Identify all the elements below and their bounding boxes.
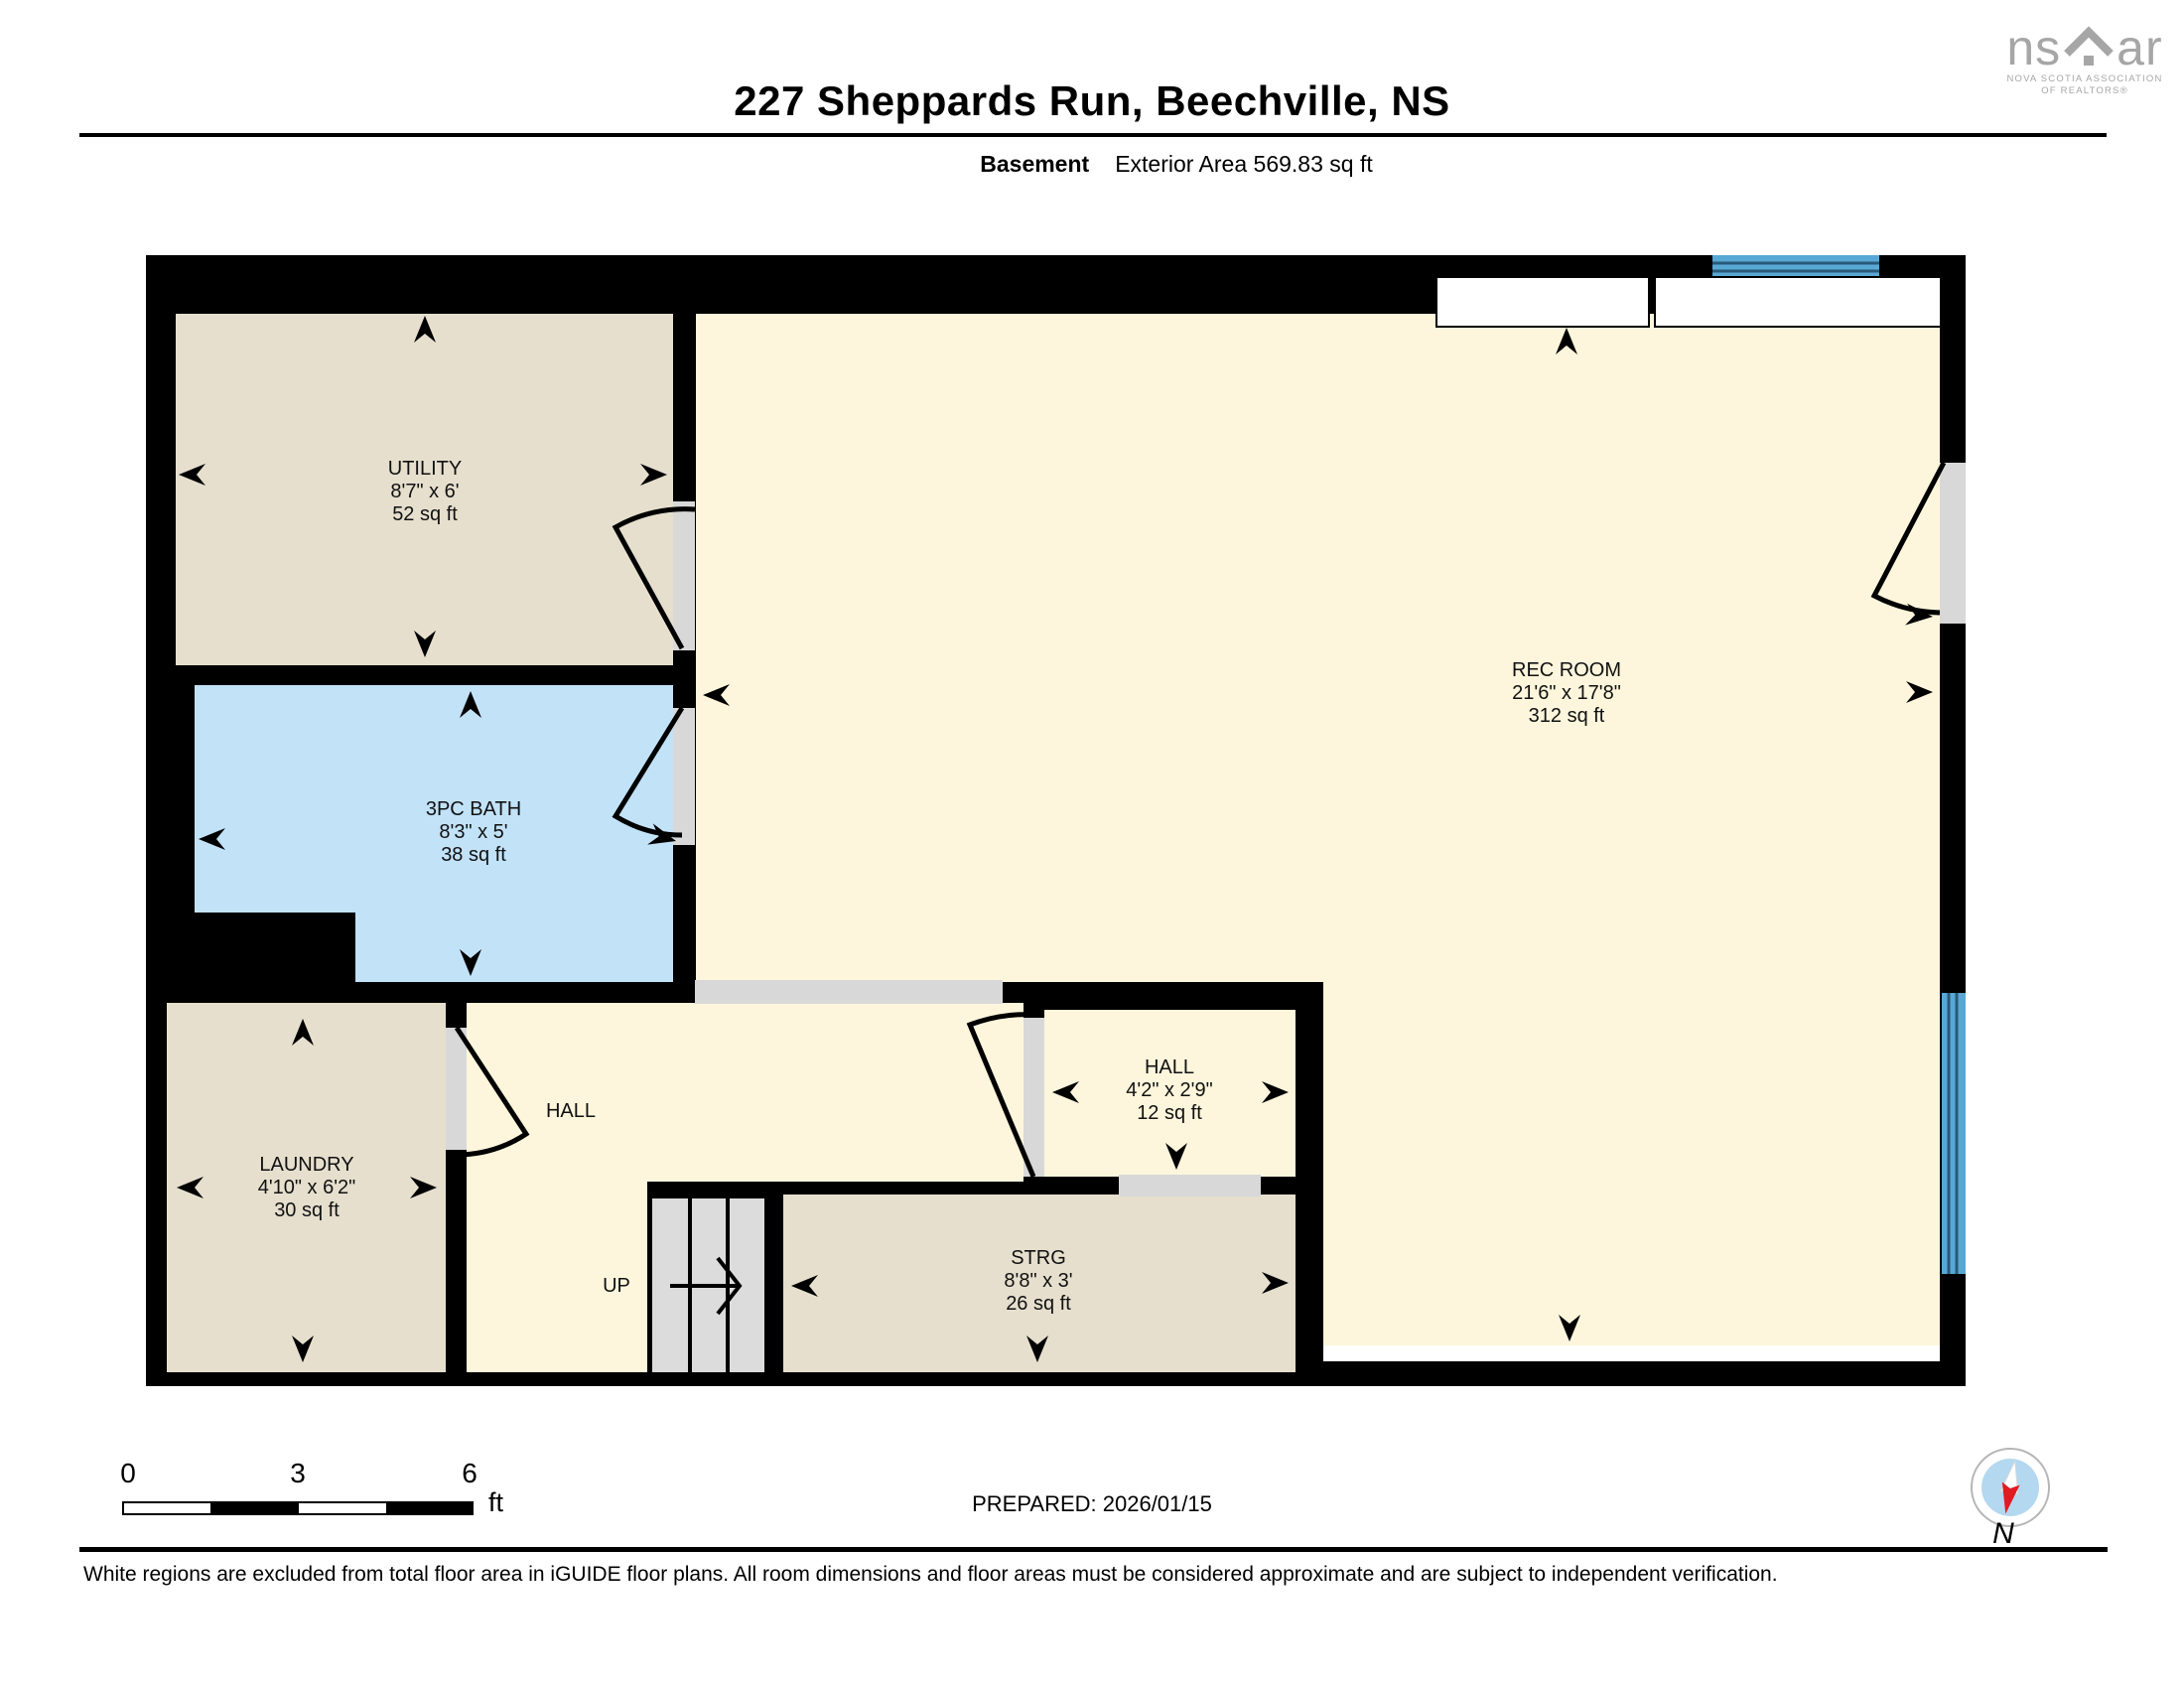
scale-bar <box>122 1501 474 1515</box>
logo-roof-icon <box>2063 26 2115 70</box>
logo-tagline-2: OF REALTORS® <box>2000 85 2169 97</box>
scale-tick-3: 3 <box>286 1458 310 1489</box>
label-hall-main: HALL <box>442 1100 700 1123</box>
door-arc-bath <box>615 708 682 835</box>
compass-needle <box>1973 1450 2048 1525</box>
label-stairs-up: UP <box>487 1275 746 1298</box>
logo-text-ns: ns <box>2006 26 2061 70</box>
level-label: Basement <box>980 151 1089 177</box>
door-arc-hall <box>970 1015 1038 1177</box>
header-divider <box>79 133 2107 137</box>
label-storage: STRG8'8" x 3'26 sq ft <box>909 1247 1167 1316</box>
compass-north-label: N <box>1974 1517 2033 1551</box>
scale-unit: ft <box>488 1487 503 1518</box>
scale-tick-6: 6 <box>458 1458 481 1489</box>
floor-plan-page: 227 Sheppards Run, Beechville, NS Baseme… <box>0 0 2184 1688</box>
level-subtitle: BasementExterior Area 569.83 sq ft <box>0 151 2184 178</box>
door-arc-rec-exterior <box>1874 463 1944 613</box>
window-mullions <box>1712 263 1957 1274</box>
prepared-date: PREPARED: 2026/01/15 <box>844 1491 1340 1517</box>
compass-icon <box>1971 1448 2050 1527</box>
door-arc-utility <box>615 509 695 648</box>
door-swing-arrow <box>647 823 679 851</box>
disclaimer-text: White regions are excluded from total fl… <box>83 1563 2118 1587</box>
floor-plan: UTILITY8'7" x 6'52 sq ft 3PC BATH8'3" x … <box>146 255 1966 1386</box>
label-rec-room: REC ROOM21'6" x 17'8"312 sq ft <box>1437 659 1696 728</box>
logo-text-ar: ar <box>2116 26 2162 70</box>
label-laundry: LAUNDRY4'10" x 6'2"30 sq ft <box>178 1154 436 1222</box>
exterior-area-label: Exterior Area 569.83 sq ft <box>1115 151 1373 177</box>
nsar-logo: ns ar NOVA SCOTIA ASSOCIATION OF REALTOR… <box>2000 26 2169 97</box>
footer-divider <box>79 1547 2108 1552</box>
page-title: 227 Sheppards Run, Beechville, NS <box>0 77 2184 125</box>
label-utility: UTILITY8'7" x 6'52 sq ft <box>296 458 554 526</box>
logo-tagline-1: NOVA SCOTIA ASSOCIATION <box>2000 73 2169 85</box>
nsar-logo-wordmark: ns ar <box>2000 26 2169 70</box>
scale-tick-0: 0 <box>116 1458 140 1489</box>
label-hall-small: HALL4'2" x 2'9"12 sq ft <box>1040 1056 1298 1125</box>
label-bath: 3PC BATH8'3" x 5'38 sq ft <box>344 798 603 867</box>
door-arc-laundry <box>457 1028 526 1155</box>
